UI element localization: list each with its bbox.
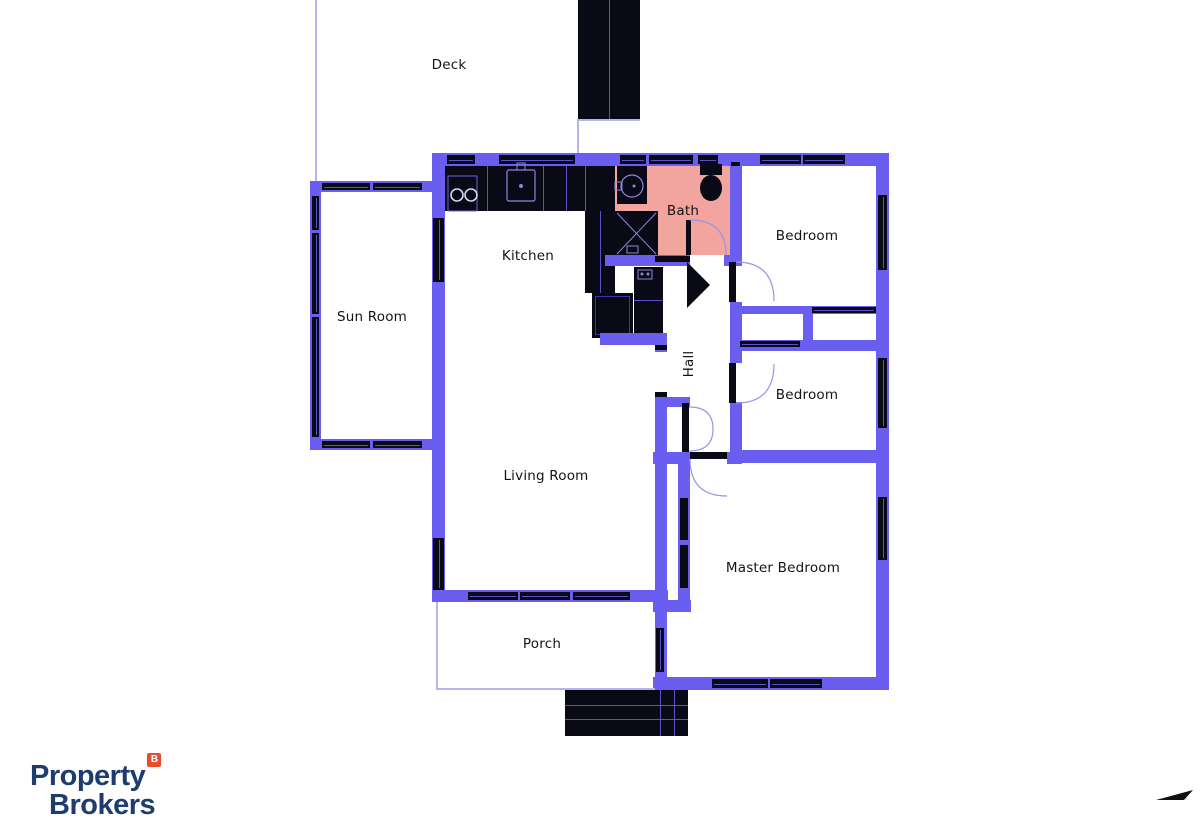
logo-text-property: Property [30, 760, 145, 792]
window [803, 155, 845, 164]
step-line [565, 719, 688, 720]
counter-divider [566, 166, 567, 211]
window [770, 679, 822, 688]
logo-line1: PropertyB [30, 762, 161, 790]
counter-divider [543, 166, 544, 211]
sunroom-door [433, 218, 444, 282]
laundry-unit [634, 267, 663, 338]
window [447, 155, 475, 164]
bath-door-leaf [686, 220, 691, 255]
bath-basin-unit [617, 166, 647, 204]
entry-arrow-icon [687, 262, 710, 308]
room-label-bedroom-top: Bedroom [776, 228, 838, 244]
window [322, 441, 370, 448]
step-line [660, 690, 661, 736]
wall-master-top-b [727, 452, 742, 464]
window [312, 317, 319, 437]
window [712, 679, 768, 688]
wall-bath-bedroom [730, 166, 742, 262]
window [520, 592, 570, 600]
bath-wall-dark-seg [655, 256, 690, 262]
wall-bedroom2-bottom [742, 450, 876, 463]
bedroom1-door-leaf [729, 262, 736, 302]
deck-boundary-right [577, 119, 579, 153]
counter-divider [585, 166, 586, 211]
window [760, 155, 801, 164]
closet-slider-door [680, 498, 688, 540]
window [312, 233, 319, 314]
step-line [565, 705, 688, 706]
window [698, 155, 718, 164]
room-label-deck: Deck [432, 57, 467, 73]
floorplan-page: { "floorplan": { "labels": { "deck": "De… [0, 0, 1200, 800]
step-line [674, 690, 675, 736]
shower [615, 211, 658, 256]
logo-line2: Brokers [49, 791, 161, 819]
window [322, 183, 370, 190]
room-label-porch: Porch [523, 636, 561, 652]
closet-wall-divider [803, 313, 813, 341]
deck-boundary-left [315, 0, 317, 183]
window [573, 592, 630, 600]
window [620, 155, 646, 164]
master-door-arc [690, 459, 727, 496]
bifold-door-leaf [682, 403, 689, 452]
closet-slider-door [740, 341, 800, 347]
washing-machine [592, 293, 633, 338]
room-label-bath: Bath [667, 203, 699, 219]
bifold-door-arc [689, 429, 713, 451]
master-door-leaf [690, 452, 727, 459]
floorplan-canvas: Deck Sun Room Kitchen Bath Bedroom Bedro… [0, 0, 1200, 800]
bifold-door-arc [689, 407, 713, 429]
window [878, 497, 887, 560]
counter-divider [600, 211, 601, 293]
window [373, 183, 422, 190]
wall-hall-left-main [655, 397, 667, 602]
room-label-sun-room: Sun Room [337, 309, 407, 325]
logo-badge-icon: B [147, 753, 161, 767]
laundry-unit-divider [634, 300, 663, 301]
bedroom2-door-leaf [729, 363, 736, 403]
closet-slider-door [680, 545, 688, 588]
entry-steps [565, 690, 688, 736]
bedroom2-door-arc [736, 364, 774, 403]
counter-divider [487, 166, 488, 211]
window [649, 155, 693, 164]
window [312, 196, 319, 230]
wall-hall-right-b [730, 402, 742, 453]
window [499, 155, 575, 164]
window [656, 628, 664, 672]
window [878, 358, 887, 428]
porch-boundary-left [436, 602, 438, 690]
window [468, 592, 518, 600]
room-label-kitchen: Kitchen [502, 248, 554, 264]
property-brokers-logo: PropertyB Brokers [30, 762, 161, 819]
window [433, 538, 444, 590]
room-label-bedroom-mid: Bedroom [776, 387, 838, 403]
room-label-living-room: Living Room [503, 468, 588, 484]
compass-sliver-icon [1156, 790, 1193, 800]
wall-master-top-a [653, 452, 690, 464]
window [878, 195, 887, 270]
chimney-bottom-line [578, 119, 640, 121]
bedroom1-door-arc [736, 262, 774, 301]
window [373, 441, 422, 448]
kitchen-counter [445, 166, 615, 211]
room-label-hall: Hall [681, 351, 697, 378]
wall-hall-right-a [730, 302, 742, 363]
chimney-divider [609, 0, 610, 119]
room-label-master-bedroom: Master Bedroom [726, 560, 840, 576]
closet-slider-door [812, 307, 876, 313]
opening-jamb [655, 345, 667, 350]
